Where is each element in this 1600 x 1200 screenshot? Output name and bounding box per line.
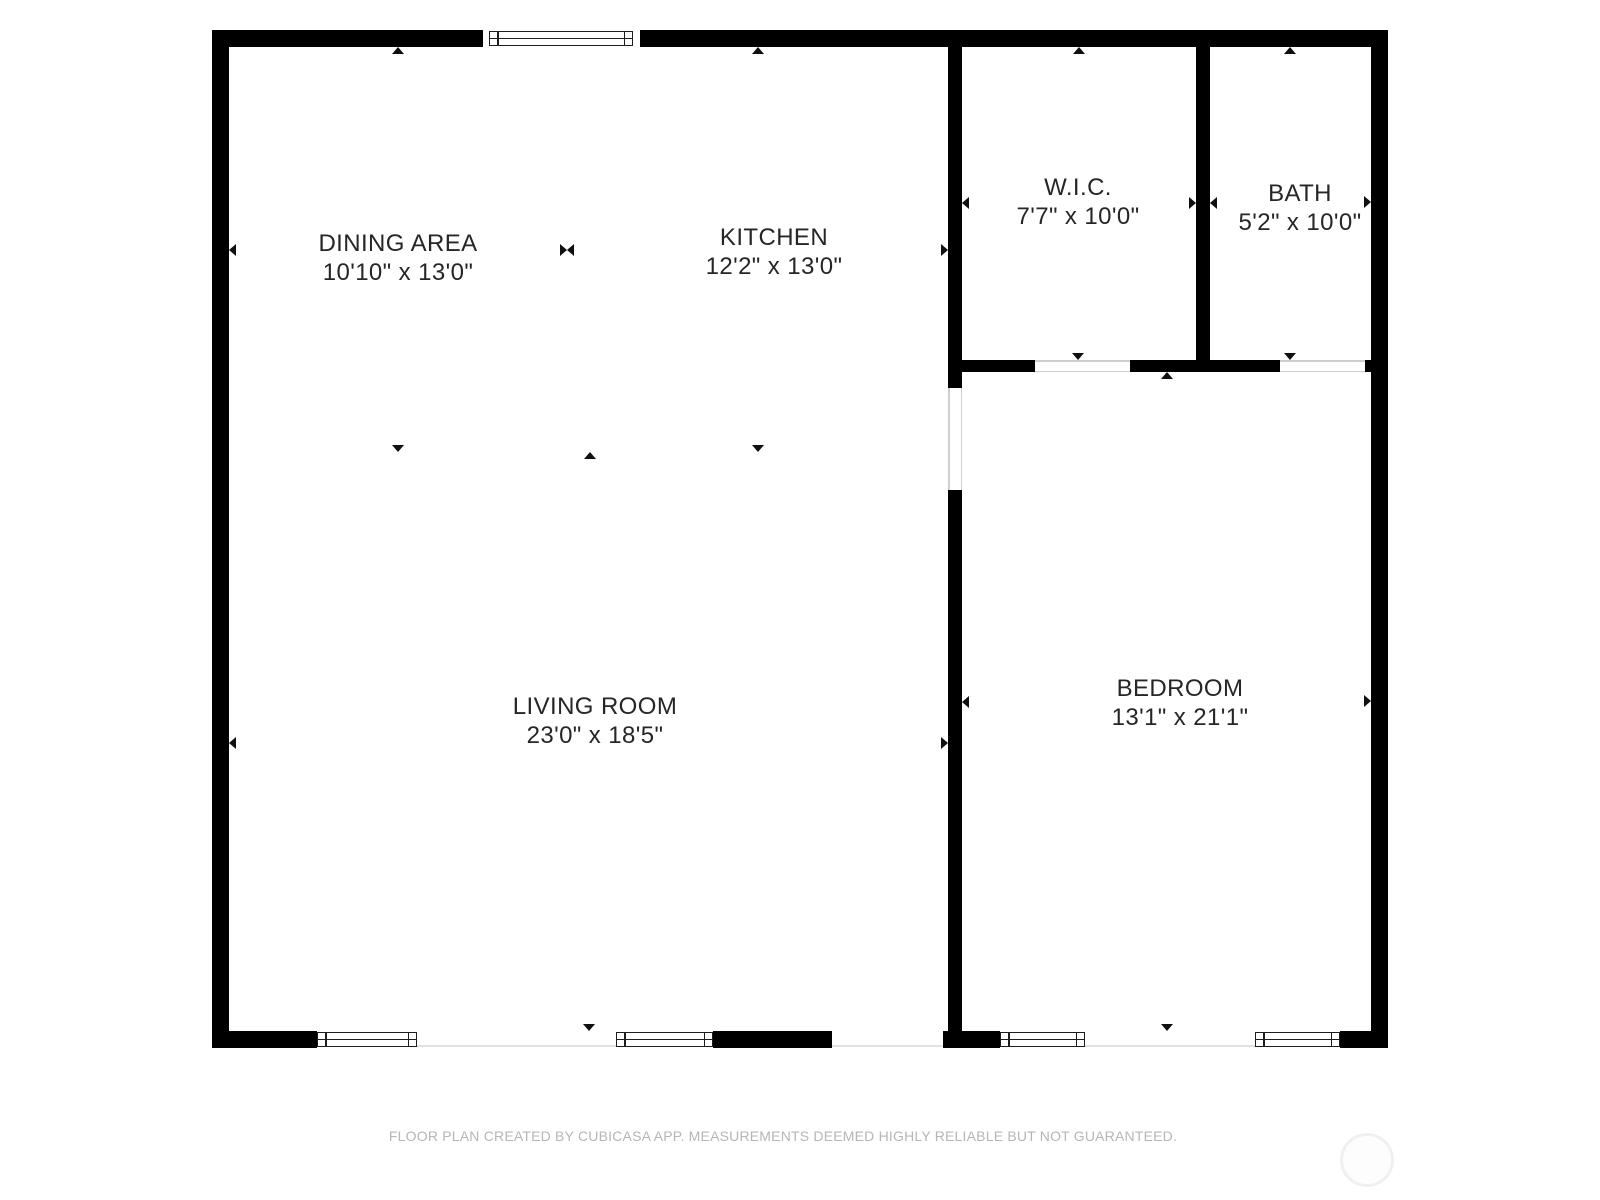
bowtie-marker-icon <box>567 244 574 256</box>
window-sash-left <box>497 32 499 45</box>
room-label-bedroom: BEDROOM 13'1" x 21'1" <box>1112 674 1249 732</box>
exterior-wall-left <box>212 30 229 1048</box>
window-sash-right <box>1331 1033 1333 1046</box>
room-name: BEDROOM <box>1112 674 1249 703</box>
arrow-right-icon <box>1364 695 1371 707</box>
room-dimensions: 7'7" x 10'0" <box>1016 202 1139 231</box>
wic-door-opening-line <box>1035 371 1130 373</box>
arrow-up-icon <box>1073 47 1085 54</box>
floor-plan: DINING AREA 10'10" x 13'0" KITCHEN 12'2"… <box>0 0 1600 1200</box>
arrow-down-icon <box>392 445 404 452</box>
window-bottom-2 <box>616 1032 713 1047</box>
arrow-down-icon <box>752 445 764 452</box>
opening-line-bottom-3 <box>1085 1045 1255 1047</box>
exterior-wall-top-right <box>640 30 1388 47</box>
arrow-down-icon <box>583 1024 595 1031</box>
window-bottom-3 <box>1000 1032 1085 1047</box>
window-sash-left <box>1263 1033 1265 1046</box>
arrow-right-icon <box>1189 197 1196 209</box>
room-name: LIVING ROOM <box>513 692 677 721</box>
arrow-right-icon <box>941 737 948 749</box>
bedroom-door-opening-line <box>961 388 963 490</box>
window-bottom-1 <box>317 1032 417 1047</box>
window-sash-left <box>624 1033 626 1046</box>
arrow-up-icon <box>392 47 404 54</box>
arrow-up-icon <box>752 47 764 54</box>
exterior-wall-top-left <box>212 30 483 47</box>
arrow-up-icon <box>1284 47 1296 54</box>
opening-line-bottom-2 <box>832 1045 943 1047</box>
opening-line-bottom-1 <box>417 1045 616 1047</box>
divider-wall-living-bedroom-lower <box>948 490 962 1031</box>
wall-below-wic-1 <box>962 360 1035 372</box>
divider-wall-wic-bath <box>1196 47 1210 360</box>
room-dimensions: 13'1" x 21'1" <box>1112 703 1249 732</box>
exterior-wall-bottom-3 <box>943 1031 1000 1048</box>
arrow-left-icon <box>962 197 969 209</box>
exterior-wall-bottom-2 <box>713 1031 832 1048</box>
room-label-dining-area: DINING AREA 10'10" x 13'0" <box>318 229 477 287</box>
window-pane-line <box>318 1039 416 1041</box>
arrow-left-icon <box>229 244 236 256</box>
window-sash-left <box>1008 1033 1010 1046</box>
arrow-down-icon <box>1072 353 1084 360</box>
window-pane-line <box>1256 1039 1339 1041</box>
room-label-living-room: LIVING ROOM 23'0" x 18'5" <box>513 692 677 750</box>
room-dimensions: 12'2" x 13'0" <box>706 252 843 281</box>
arrow-down-icon <box>1284 353 1296 360</box>
arrow-right-icon <box>1364 196 1371 208</box>
room-name: W.I.C. <box>1016 173 1139 202</box>
window-pane-line <box>1001 1039 1084 1041</box>
arrow-up-icon <box>1161 372 1173 379</box>
arrow-left-icon <box>229 737 236 749</box>
room-name: KITCHEN <box>706 223 843 252</box>
bedroom-door-opening-line <box>948 388 950 490</box>
room-label-wic: W.I.C. 7'7" x 10'0" <box>1016 173 1139 231</box>
room-label-bath: BATH 5'2" x 10'0" <box>1238 179 1361 237</box>
bowtie-marker-icon <box>560 244 567 256</box>
room-dimensions: 10'10" x 13'0" <box>318 258 477 287</box>
cubicasa-logo-watermark-icon <box>1340 1133 1394 1187</box>
window-sash-left <box>325 1033 327 1046</box>
wic-door-opening-line <box>1035 360 1130 362</box>
window-bottom-4 <box>1255 1032 1340 1047</box>
window-pane-line <box>617 1039 712 1041</box>
wall-below-bath-stub <box>1365 360 1371 372</box>
arrow-left-icon <box>962 696 969 708</box>
arrow-left-icon <box>1210 197 1217 209</box>
arrow-down-icon <box>1161 1024 1173 1031</box>
exterior-wall-bottom-4 <box>1340 1031 1388 1048</box>
room-name: DINING AREA <box>318 229 477 258</box>
exterior-wall-bottom-1 <box>212 1031 317 1048</box>
room-label-kitchen: KITCHEN 12'2" x 13'0" <box>706 223 843 281</box>
window-sash-right <box>408 1033 410 1046</box>
divider-wall-living-bedroom-upper <box>948 47 962 388</box>
window-top <box>489 31 633 46</box>
room-name: BATH <box>1238 179 1361 208</box>
bath-door-opening-line <box>1280 371 1365 373</box>
room-dimensions: 23'0" x 18'5" <box>513 721 677 750</box>
arrow-right-icon <box>941 244 948 256</box>
window-pane-line <box>490 38 632 40</box>
window-sash-right <box>624 32 626 45</box>
room-dimensions: 5'2" x 10'0" <box>1238 208 1361 237</box>
bath-door-opening-line <box>1280 360 1365 362</box>
arrow-up-icon <box>584 452 596 459</box>
window-sash-right <box>704 1033 706 1046</box>
exterior-wall-right <box>1371 30 1388 1048</box>
window-sash-right <box>1076 1033 1078 1046</box>
wall-below-wic-2 <box>1130 360 1280 372</box>
disclaimer-text: FLOOR PLAN CREATED BY CUBICASA APP. MEAS… <box>389 1128 1177 1144</box>
